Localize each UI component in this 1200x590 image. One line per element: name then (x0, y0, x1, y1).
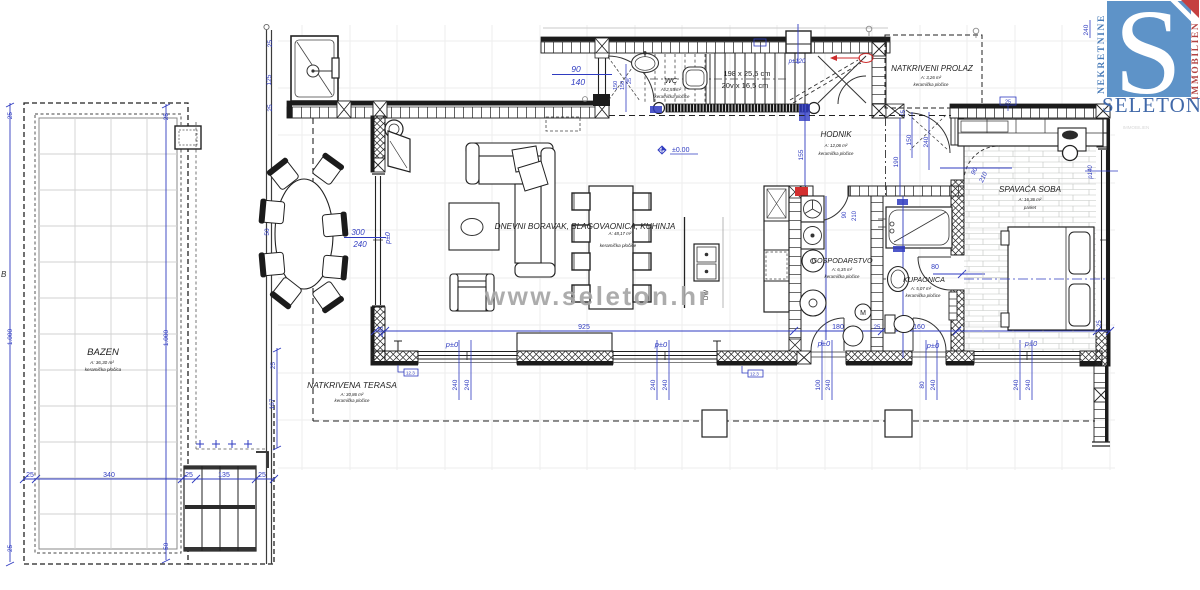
svg-text:NATKRIVENA TERASA: NATKRIVENA TERASA (307, 380, 397, 390)
svg-text:25: 25 (7, 544, 14, 552)
svg-text:240: 240 (452, 379, 459, 390)
svg-text:50: 50 (163, 542, 170, 550)
svg-text:100: 100 (815, 379, 822, 390)
svg-text:25: 25 (1097, 320, 1103, 327)
svg-text:A: 12,06 m²: A: 12,06 m² (824, 143, 848, 148)
svg-text:240: 240 (352, 240, 367, 249)
svg-text:90: 90 (571, 64, 581, 74)
svg-text:12.3: 12.3 (750, 372, 759, 377)
svg-text:keramička pločice: keramička pločice (906, 293, 941, 298)
svg-text:240: 240 (1083, 24, 1090, 35)
svg-text:150: 150 (613, 81, 619, 90)
svg-text:25: 25 (185, 472, 193, 479)
svg-text:240: 240 (825, 379, 832, 390)
svg-text:90: 90 (842, 211, 848, 218)
svg-text:155: 155 (798, 149, 805, 160)
svg-text:1.000: 1.000 (163, 329, 170, 346)
svg-text:p±120: p±120 (788, 59, 806, 65)
svg-text:A: 6,35 m²: A: 6,35 m² (831, 267, 853, 272)
svg-text:A: 2,55 m²: A: 2,55 m² (660, 87, 682, 92)
svg-text:25: 25 (270, 362, 277, 370)
svg-text:190: 190 (893, 156, 900, 167)
svg-text:240: 240 (1013, 379, 1020, 390)
svg-text:IMMOBILIEN: IMMOBILIEN (1123, 125, 1150, 130)
svg-text:150: 150 (620, 81, 626, 90)
svg-text:p±0: p±0 (445, 340, 459, 349)
svg-text:A: 5,07 m²: A: 5,07 m² (910, 286, 932, 291)
svg-text:925: 925 (578, 324, 590, 331)
svg-text:keramička pločice: keramička pločice (335, 398, 370, 403)
svg-text:A: 3,26 m²: A: 3,26 m² (920, 75, 942, 80)
svg-text:keramička pločice: keramička pločice (655, 94, 690, 99)
svg-text:keramička pločice: keramička pločice (914, 82, 949, 87)
svg-text:M: M (860, 310, 866, 317)
svg-text:140: 140 (571, 77, 585, 87)
svg-text:parket: parket (1023, 205, 1037, 210)
svg-text:NATKRIVENI PROLAZ: NATKRIVENI PROLAZ (891, 64, 974, 73)
svg-text:DNEVNI BORAVAK, BLAGOVAONICA,: DNEVNI BORAVAK, BLAGOVAONICA, KUHINJA (495, 222, 676, 231)
svg-text:25: 25 (7, 112, 14, 120)
svg-text:240: 240 (1025, 379, 1032, 390)
svg-text:1.000: 1.000 (7, 328, 14, 345)
svg-text:240: 240 (464, 379, 471, 390)
svg-text:25: 25 (26, 472, 34, 479)
svg-text:50: 50 (264, 228, 271, 236)
svg-text:25: 25 (267, 40, 274, 48)
svg-text:12.3: 12.3 (406, 371, 415, 376)
svg-text:80: 80 (919, 381, 926, 389)
svg-text:A: 16,36 m²: A: 16,36 m² (1018, 197, 1042, 202)
svg-text:GOSPODARSTVO: GOSPODARSTVO (811, 256, 873, 265)
svg-text:198 x 25,5 cm: 198 x 25,5 cm (723, 69, 770, 78)
svg-text:NEKRETNINE: NEKRETNINE (1097, 14, 1107, 94)
svg-text:25: 25 (258, 472, 266, 479)
svg-text:p±0: p±0 (385, 232, 392, 245)
svg-text:WC: WC (665, 76, 678, 85)
svg-text:167: 167 (269, 398, 276, 409)
svg-text:A: 48,17 m²: A: 48,17 m² (608, 231, 632, 236)
svg-text:keramička pločice: keramička pločice (819, 151, 854, 156)
svg-text:A: 30,86 m²: A: 30,86 m² (340, 392, 364, 397)
svg-text:25: 25 (627, 78, 633, 84)
svg-text:25: 25 (163, 113, 170, 121)
svg-text:keramička pločice: keramička pločice (825, 274, 860, 279)
svg-text:keramička pločica: keramička pločica (85, 367, 122, 372)
svg-text:IMMOBILIEN: IMMOBILIEN (1191, 22, 1200, 100)
svg-text:www.seleton.hr: www.seleton.hr (484, 281, 711, 311)
svg-text:240: 240 (378, 326, 385, 337)
svg-text:p140: p140 (1088, 165, 1094, 180)
svg-text:HODNIK: HODNIK (820, 130, 852, 139)
svg-text:240: 240 (650, 379, 657, 390)
svg-text:125: 125 (266, 74, 273, 85)
svg-text:p±0: p±0 (926, 341, 940, 350)
svg-text:p±0: p±0 (654, 340, 668, 349)
svg-text:240: 240 (930, 379, 937, 390)
svg-text:80: 80 (931, 264, 939, 271)
svg-text:25: 25 (874, 325, 881, 331)
svg-text:180: 180 (832, 324, 844, 331)
svg-text:SELETON: SELETON (1102, 93, 1200, 117)
svg-text:210: 210 (852, 210, 858, 221)
svg-text:160: 160 (913, 324, 925, 331)
svg-text:B: B (1, 270, 7, 279)
svg-text:SPAVAĆA SOBA: SPAVAĆA SOBA (999, 184, 1062, 194)
svg-text:135: 135 (218, 472, 230, 479)
svg-text:25: 25 (1005, 100, 1011, 106)
svg-text:p±0: p±0 (817, 339, 831, 348)
svg-text:20v x 16,5 cm: 20v x 16,5 cm (722, 81, 769, 90)
svg-text:±0.00: ±0.00 (672, 147, 690, 154)
svg-text:340: 340 (103, 472, 115, 479)
svg-text:A: 36,30 m²: A: 36,30 m² (89, 360, 114, 365)
svg-text:240: 240 (662, 379, 669, 390)
svg-text:300: 300 (351, 228, 365, 237)
svg-text:keramička pločice: keramička pločice (600, 243, 637, 248)
svg-text:25: 25 (267, 104, 274, 112)
svg-text:BAZEN: BAZEN (87, 347, 119, 358)
